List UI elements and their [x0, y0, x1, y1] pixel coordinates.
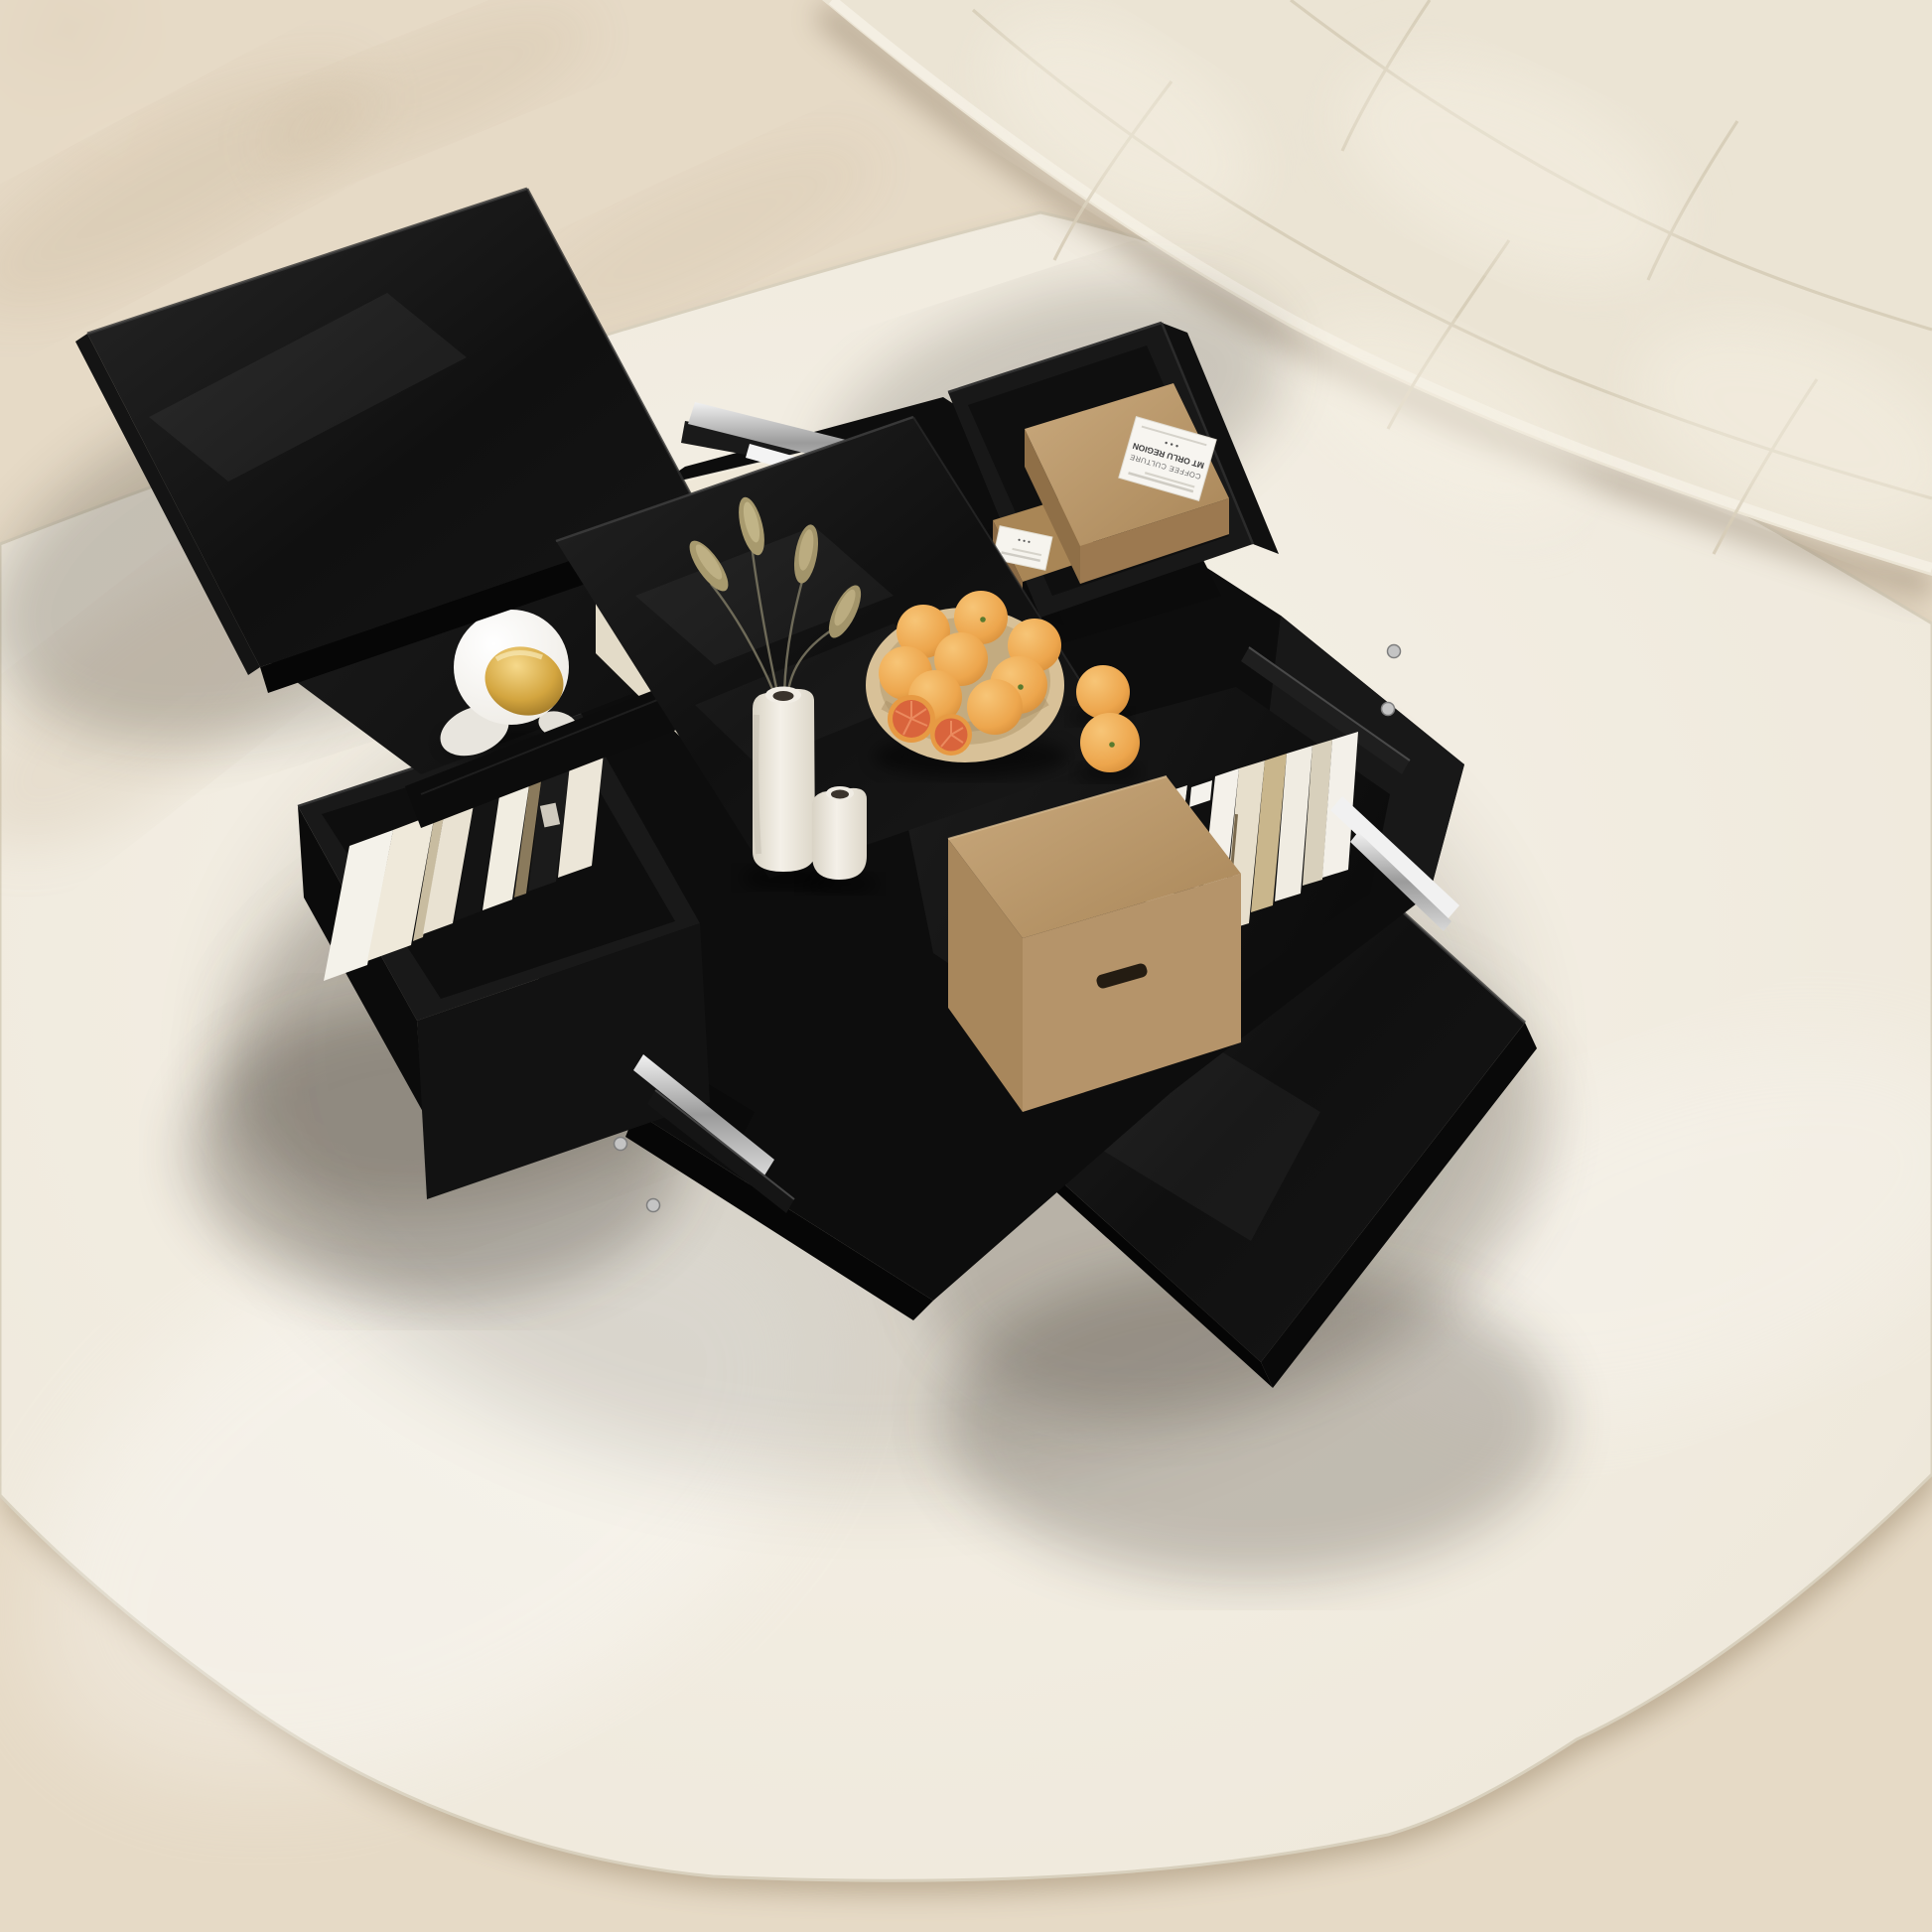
- product-photo: • • • COFFEE CULTURE MT ORLU REGION • • …: [0, 0, 1932, 1932]
- tall-vase: [753, 687, 815, 873]
- orange-fruit: [1076, 665, 1130, 719]
- orange-calyx: [1018, 684, 1024, 690]
- orange-calyx: [980, 617, 986, 622]
- orange-fruit: [1080, 713, 1140, 772]
- vase-opening: [831, 790, 849, 799]
- blood-orange-half: [888, 695, 935, 743]
- vase-opening: [773, 691, 794, 701]
- screw: [1382, 703, 1395, 716]
- screw: [1388, 645, 1401, 658]
- blood-orange-half: [930, 714, 972, 756]
- small-vase: [812, 786, 867, 880]
- orange-fruit: [967, 679, 1023, 735]
- screw: [647, 1199, 660, 1212]
- scene-canvas: • • • COFFEE CULTURE MT ORLU REGION • • …: [0, 0, 1932, 1932]
- orange-calyx: [1109, 742, 1115, 748]
- screw: [615, 1138, 627, 1151]
